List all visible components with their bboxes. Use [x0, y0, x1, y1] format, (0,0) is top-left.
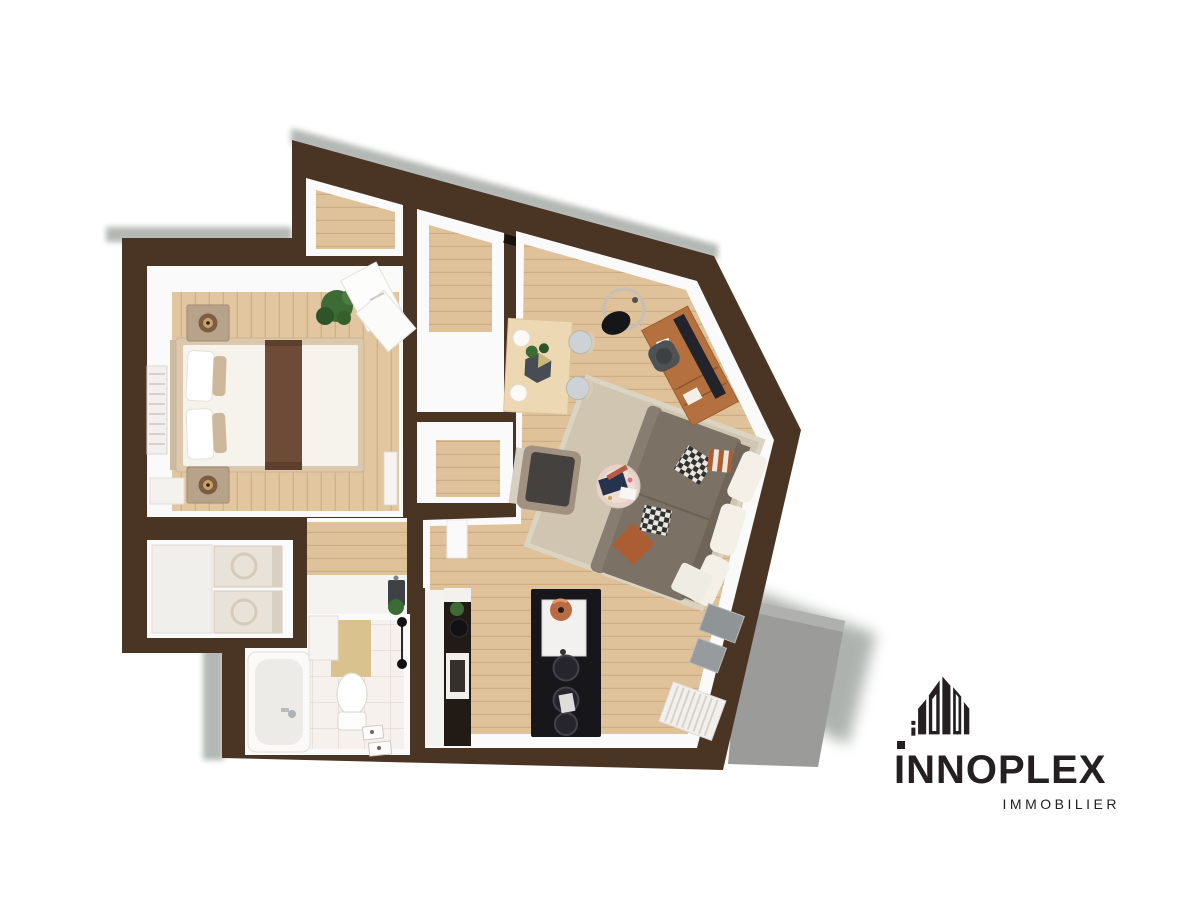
innoplex-logo-icon: [910, 660, 972, 748]
nightstand-bottom: [187, 467, 229, 503]
bedroom-door: [384, 452, 397, 505]
room-corridor: [307, 518, 407, 614]
vanity: [309, 616, 338, 660]
kitchen-tall-unit: [444, 588, 471, 746]
logo-subtitle: IMMOBILIER: [894, 796, 1120, 812]
nightstand-top: [187, 305, 229, 341]
room-utility: [147, 540, 293, 638]
armchair: [508, 443, 582, 516]
bedroom-bench: [150, 478, 184, 504]
room-hall-closet: [417, 422, 513, 503]
hob-icon: [450, 619, 468, 637]
toilet-icon: [337, 673, 367, 730]
pendant-lamp-icon: [550, 599, 572, 621]
wall-stub: [447, 520, 467, 558]
coffee-table: [596, 464, 640, 508]
bed: [170, 338, 364, 472]
dryer-icon: [214, 591, 282, 633]
pillow-stripe: [707, 449, 733, 473]
letter-i-dot: [897, 741, 905, 749]
tall-cabinet: [152, 545, 212, 633]
radiator-icon: [147, 366, 167, 454]
room-dressing-closet: [417, 209, 504, 412]
washer-icon: [214, 546, 282, 587]
counter-plant-icon: [450, 602, 464, 616]
floorplan-render: INNOPLEX IMMOBILIER: [0, 0, 1200, 900]
logo-wordmark: INNOPLEX: [894, 750, 1134, 790]
bathtub-icon: [248, 652, 310, 752]
room-bedroom: [147, 262, 416, 517]
logo-wordmark-row: INNOPLEX: [894, 750, 1134, 790]
innoplex-logo: INNOPLEX IMMOBILIER: [894, 660, 1134, 812]
kitchen-island: [531, 589, 601, 737]
bath-plant-icon: [388, 599, 404, 615]
